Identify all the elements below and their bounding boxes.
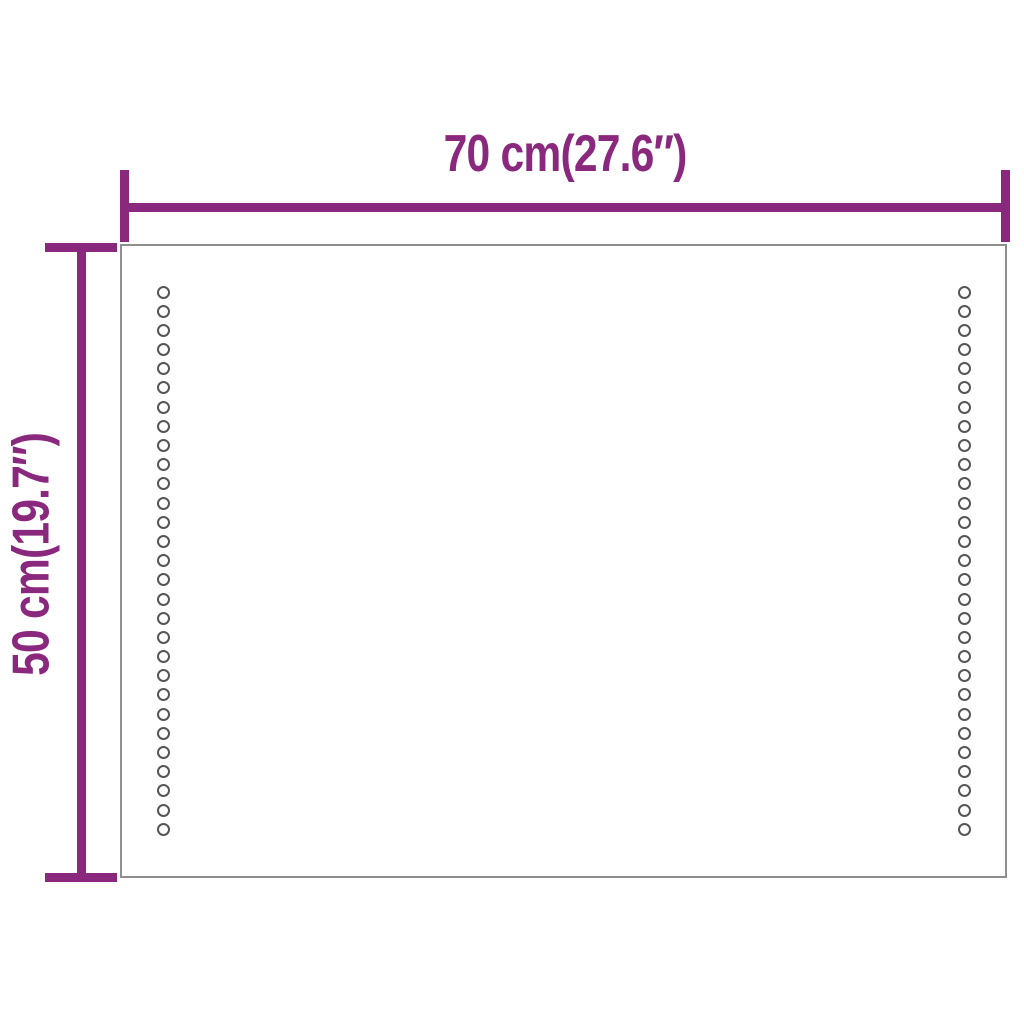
- led-hole: [958, 688, 971, 701]
- led-column-right: [958, 286, 971, 836]
- led-hole: [958, 746, 971, 759]
- led-hole: [958, 727, 971, 740]
- led-hole: [958, 612, 971, 625]
- led-hole: [958, 343, 971, 356]
- width-dimension-label: 70 cm(27.6″): [120, 126, 1010, 183]
- led-hole: [157, 612, 170, 625]
- height-dimension-label: 50 cm(19.7″): [4, 355, 61, 755]
- led-hole: [157, 746, 170, 759]
- led-hole: [958, 439, 971, 452]
- led-hole: [958, 593, 971, 606]
- led-hole: [157, 362, 170, 375]
- led-hole: [157, 727, 170, 740]
- height-dimension-line: [77, 243, 86, 882]
- height-dimension-tick-bottom: [45, 873, 117, 882]
- led-hole: [157, 305, 170, 318]
- led-hole: [958, 784, 971, 797]
- led-hole: [157, 669, 170, 682]
- led-hole: [958, 823, 971, 836]
- led-hole: [958, 497, 971, 510]
- led-hole: [958, 458, 971, 471]
- led-hole: [958, 573, 971, 586]
- led-hole: [157, 497, 170, 510]
- led-hole: [157, 381, 170, 394]
- led-hole: [958, 708, 971, 721]
- led-hole: [157, 535, 170, 548]
- led-hole: [958, 554, 971, 567]
- led-hole: [157, 420, 170, 433]
- mirror-outline: [120, 244, 1007, 878]
- led-hole: [157, 439, 170, 452]
- led-hole: [958, 631, 971, 644]
- led-column-left: [157, 286, 170, 836]
- led-hole: [958, 305, 971, 318]
- led-hole: [958, 516, 971, 529]
- led-hole: [157, 593, 170, 606]
- led-hole: [157, 688, 170, 701]
- width-dimension-tick-right: [1001, 170, 1010, 242]
- dimension-diagram: 70 cm(27.6″) 50 cm(19.7″): [0, 0, 1024, 1024]
- led-hole: [157, 554, 170, 567]
- led-hole: [157, 708, 170, 721]
- led-hole: [958, 401, 971, 414]
- led-hole: [958, 420, 971, 433]
- led-hole: [157, 343, 170, 356]
- width-dimension-line: [120, 203, 1010, 212]
- led-hole: [157, 631, 170, 644]
- led-hole: [157, 823, 170, 836]
- led-hole: [157, 401, 170, 414]
- led-hole: [157, 573, 170, 586]
- led-hole: [157, 458, 170, 471]
- led-hole: [157, 650, 170, 663]
- led-hole: [958, 650, 971, 663]
- led-hole: [958, 381, 971, 394]
- width-dimension-text: 70 cm(27.6″): [444, 126, 687, 183]
- led-hole: [157, 286, 170, 299]
- led-hole: [157, 324, 170, 337]
- led-hole: [958, 324, 971, 337]
- led-hole: [958, 535, 971, 548]
- led-hole: [958, 765, 971, 778]
- led-hole: [157, 765, 170, 778]
- led-hole: [958, 362, 971, 375]
- led-hole: [958, 669, 971, 682]
- led-hole: [958, 804, 971, 817]
- height-dimension-tick-top: [45, 243, 117, 252]
- led-hole: [157, 477, 170, 490]
- width-dimension-tick-left: [120, 170, 129, 242]
- led-hole: [157, 784, 170, 797]
- led-hole: [157, 804, 170, 817]
- led-hole: [157, 516, 170, 529]
- height-dimension-text: 50 cm(19.7″): [4, 433, 61, 676]
- led-hole: [958, 286, 971, 299]
- led-hole: [958, 477, 971, 490]
